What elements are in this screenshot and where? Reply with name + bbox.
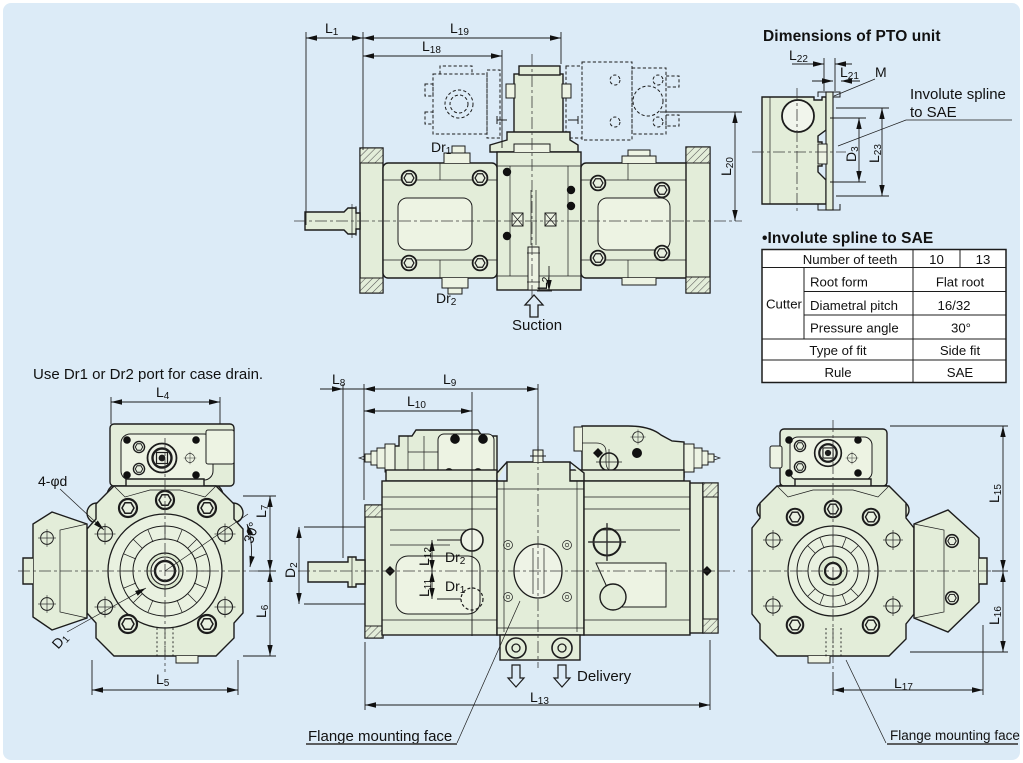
svg-text:13: 13 xyxy=(976,252,991,267)
svg-text:Diametral pitch: Diametral pitch xyxy=(810,298,898,313)
svg-text:Use Dr1 or Dr2 port for case d: Use Dr1 or Dr2 port for case drain. xyxy=(33,366,263,383)
svg-text:Dimensions of PTO unit: Dimensions of PTO unit xyxy=(763,28,941,45)
svg-text:Flange mounting face: Flange mounting face xyxy=(308,728,452,745)
svg-text:M: M xyxy=(875,64,887,80)
svg-text:16/32: 16/32 xyxy=(937,298,970,313)
svg-text:to SAE: to SAE xyxy=(910,104,957,121)
svg-text:Pressure angle: Pressure angle xyxy=(810,321,899,336)
svg-text:Side fit: Side fit xyxy=(940,343,981,358)
svg-text:4-φd: 4-φd xyxy=(38,473,67,489)
svg-text:Type of fit: Type of fit xyxy=(809,343,867,358)
svg-text:10: 10 xyxy=(929,252,944,267)
svg-text:Suction: Suction xyxy=(512,317,562,334)
svg-text:Number of teeth: Number of teeth xyxy=(803,252,898,267)
svg-text:SAE: SAE xyxy=(947,365,974,380)
svg-text:Delivery: Delivery xyxy=(577,668,632,685)
svg-text:Cutter: Cutter xyxy=(766,297,803,312)
svg-text:Involute spline: Involute spline xyxy=(910,86,1006,103)
svg-text:Rule: Rule xyxy=(824,365,851,380)
svg-text:Root form: Root form xyxy=(810,275,868,290)
svg-text:Flat root: Flat root xyxy=(936,275,985,290)
svg-text:•Involute spline to SAE: •Involute spline to SAE xyxy=(762,230,933,247)
svg-text:Flange mounting face: Flange mounting face xyxy=(890,728,1020,743)
svg-text:30°: 30° xyxy=(951,321,971,336)
